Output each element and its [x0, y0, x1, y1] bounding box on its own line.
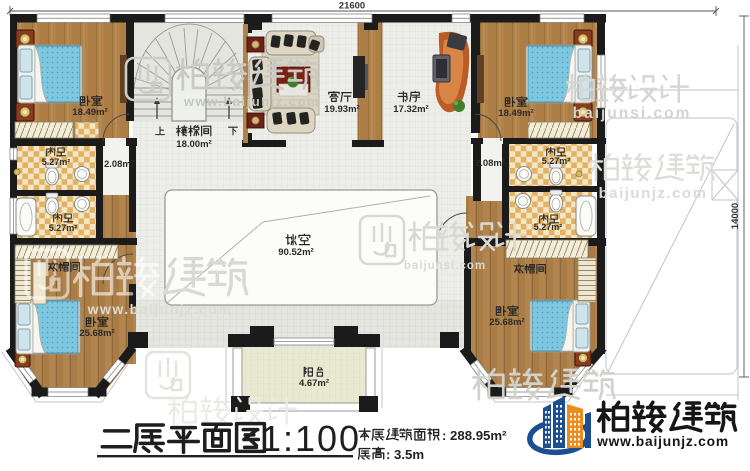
svg-text:25.68m²: 25.68m² — [79, 328, 114, 339]
svg-text:5.27m²: 5.27m² — [49, 223, 78, 233]
svg-text:: 288.95m²: : 288.95m² — [442, 428, 507, 443]
svg-text:17.32m²: 17.32m² — [393, 104, 428, 115]
svg-text:2.08m²: 2.08m² — [475, 158, 505, 169]
svg-text:25.68m²: 25.68m² — [489, 317, 524, 328]
svg-text:90.52m²: 90.52m² — [278, 247, 313, 258]
svg-text:2.08m²: 2.08m² — [104, 159, 134, 170]
svg-text:baijunjz.com: baijunjz.com — [599, 185, 708, 202]
svg-text:14000: 14000 — [730, 203, 741, 229]
svg-text:www.baijunjz.com: www.baijunjz.com — [183, 94, 320, 109]
svg-text:5.27m²: 5.27m² — [534, 222, 563, 232]
svg-text:: 3.5m: : 3.5m — [386, 447, 424, 462]
svg-text:baijunsi.com: baijunsi.com — [573, 105, 692, 122]
svg-text:www.baijunjz.com: www.baijunjz.com — [87, 301, 233, 317]
svg-text:19.93m²: 19.93m² — [324, 104, 359, 115]
svg-text:21600: 21600 — [339, 1, 365, 12]
svg-text:4.67m²: 4.67m² — [299, 378, 329, 389]
svg-text:18.49m²: 18.49m² — [498, 108, 533, 119]
svg-text:18.49m²: 18.49m² — [72, 107, 107, 118]
svg-text:5.27m²: 5.27m² — [42, 157, 71, 167]
svg-text:18.00m²: 18.00m² — [176, 139, 211, 150]
svg-text:5.27m²: 5.27m² — [542, 156, 571, 166]
svg-text:baijunsi.com: baijunsi.com — [404, 260, 486, 272]
svg-text:www.baijunjz.com: www.baijunjz.com — [596, 434, 729, 449]
svg-text:1:100: 1:100 — [261, 418, 361, 459]
